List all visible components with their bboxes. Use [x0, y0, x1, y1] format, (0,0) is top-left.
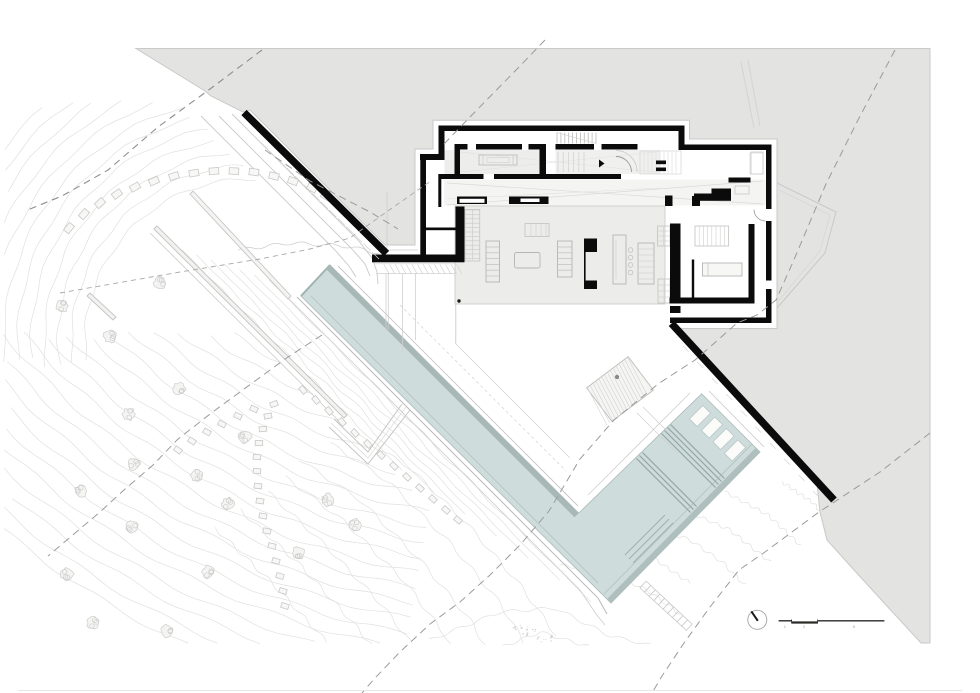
svg-text:2: 2: [803, 625, 805, 629]
svg-text:5: 5: [853, 625, 855, 629]
svg-text:1: 1: [784, 625, 786, 629]
